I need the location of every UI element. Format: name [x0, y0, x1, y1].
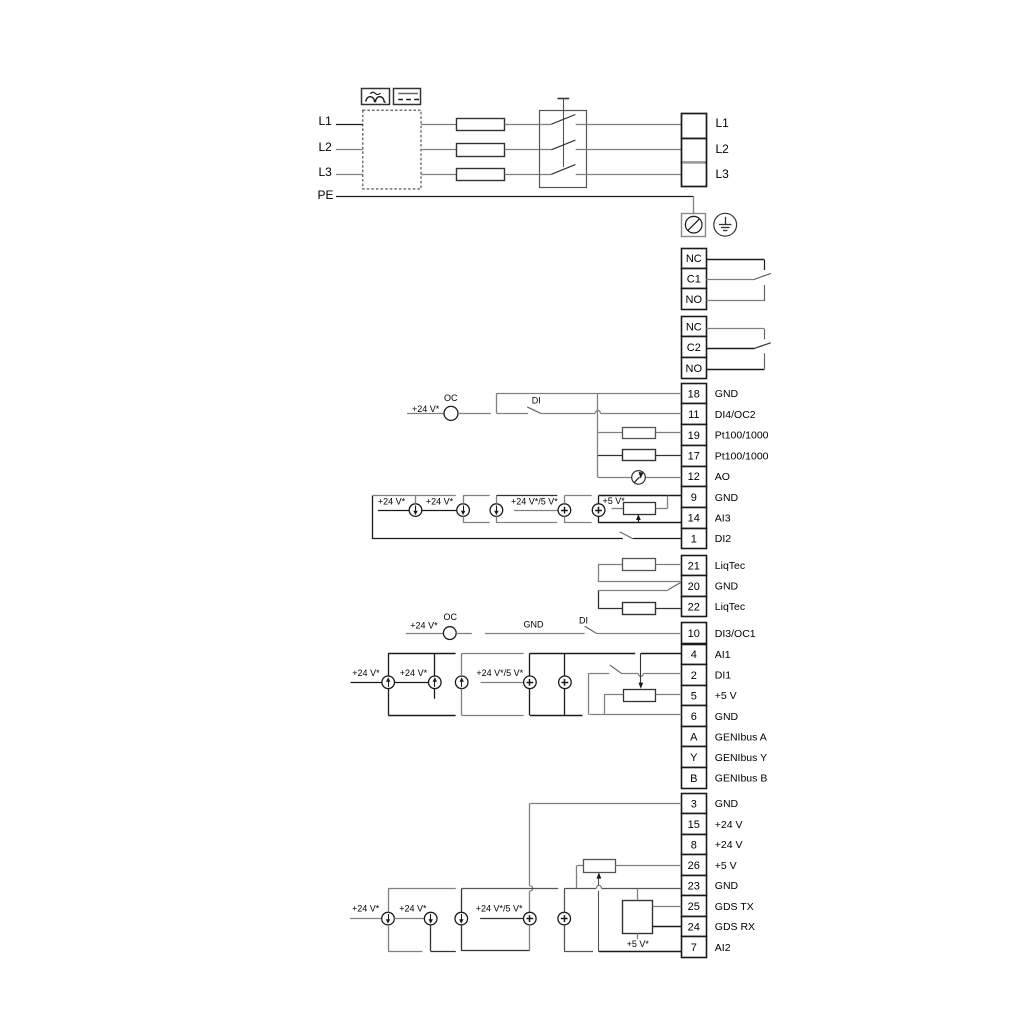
svg-text:+5 V: +5 V	[715, 860, 737, 872]
svg-text:26: 26	[688, 860, 700, 872]
svg-text:15: 15	[688, 819, 700, 831]
svg-text:AO: AO	[715, 471, 730, 483]
svg-text:L2: L2	[716, 142, 730, 156]
svg-text:L3: L3	[716, 167, 730, 181]
svg-text:L2: L2	[319, 140, 333, 154]
svg-text:GENIbus B: GENIbus B	[715, 773, 768, 785]
svg-text:6: 6	[691, 711, 697, 723]
svg-text:+5 V*: +5 V*	[603, 496, 626, 506]
svg-text:GND: GND	[715, 798, 739, 810]
svg-text:+24 V*/5 V*: +24 V*/5 V*	[511, 497, 558, 507]
svg-text:20: 20	[688, 581, 700, 593]
svg-text:L3: L3	[319, 165, 333, 179]
svg-text:DI4/OC2: DI4/OC2	[715, 409, 756, 421]
svg-text:DI: DI	[532, 395, 541, 405]
svg-text:NC: NC	[686, 253, 702, 265]
svg-text:Y: Y	[690, 752, 698, 764]
svg-text:L1: L1	[319, 114, 333, 128]
svg-text:14: 14	[688, 513, 700, 525]
svg-text:C2: C2	[687, 342, 701, 354]
svg-text:2: 2	[691, 670, 697, 682]
svg-text:GDS TX: GDS TX	[715, 901, 754, 913]
svg-text:+5 V: +5 V	[715, 690, 737, 702]
svg-text:+24 V*: +24 V*	[352, 668, 380, 678]
svg-text:L1: L1	[716, 116, 730, 130]
svg-text:GENIbus A: GENIbus A	[715, 731, 767, 743]
svg-text:GDS RX: GDS RX	[715, 921, 755, 933]
svg-text:PE: PE	[318, 188, 334, 202]
svg-text:5: 5	[691, 690, 697, 702]
svg-text:+24 V*: +24 V*	[399, 904, 427, 914]
svg-text:1: 1	[691, 533, 697, 545]
svg-text:Pt100/1000: Pt100/1000	[715, 450, 769, 462]
svg-text:22: 22	[688, 601, 700, 613]
svg-text:NC: NC	[686, 321, 702, 333]
svg-text:LiqTec: LiqTec	[715, 560, 745, 572]
svg-text:3: 3	[691, 798, 697, 810]
svg-text:+24 V*/5 V*: +24 V*/5 V*	[476, 668, 523, 678]
svg-text:DI3/OC1: DI3/OC1	[715, 628, 756, 640]
svg-text:AI1: AI1	[715, 649, 731, 661]
svg-text:+24 V: +24 V	[715, 839, 743, 851]
svg-text:25: 25	[688, 901, 700, 913]
svg-text:NO: NO	[686, 294, 703, 306]
svg-text:17: 17	[688, 451, 700, 463]
svg-text:GND: GND	[715, 388, 739, 400]
svg-text:Pt100/1000: Pt100/1000	[715, 430, 769, 442]
svg-text:+5 V*: +5 V*	[627, 939, 650, 949]
svg-text:12: 12	[688, 471, 700, 483]
svg-text:9: 9	[691, 492, 697, 504]
svg-text:DI: DI	[579, 615, 588, 625]
svg-text:+24 V*: +24 V*	[410, 621, 438, 631]
svg-text:OC: OC	[444, 393, 458, 403]
svg-text:8: 8	[691, 839, 697, 851]
svg-text:C1: C1	[687, 274, 701, 286]
svg-text:GND: GND	[715, 581, 739, 593]
svg-text:21: 21	[688, 560, 700, 572]
svg-text:+24 V*: +24 V*	[378, 497, 406, 507]
svg-text:DI2: DI2	[715, 533, 732, 545]
svg-text:GND: GND	[715, 711, 739, 723]
svg-text:7: 7	[691, 942, 697, 954]
svg-text:24: 24	[688, 921, 700, 933]
svg-text:10: 10	[688, 628, 700, 640]
svg-text:+24 V*: +24 V*	[412, 404, 440, 414]
svg-text:AI2: AI2	[715, 942, 731, 954]
svg-text:GENIbus Y: GENIbus Y	[715, 752, 767, 764]
svg-text:GND: GND	[715, 492, 739, 504]
svg-text:18: 18	[688, 388, 700, 400]
svg-text:+24 V: +24 V	[715, 819, 743, 831]
svg-text:NO: NO	[686, 363, 703, 375]
svg-text:B: B	[690, 773, 697, 785]
svg-text:+24 V*: +24 V*	[426, 497, 454, 507]
svg-text:A: A	[690, 732, 698, 744]
svg-text:OC: OC	[444, 612, 458, 622]
svg-text:LiqTec: LiqTec	[715, 601, 745, 613]
svg-text:23: 23	[688, 880, 700, 892]
svg-text:GND: GND	[715, 880, 739, 892]
svg-text:+24 V*: +24 V*	[400, 668, 428, 678]
svg-text:+24 V*/5 V*: +24 V*/5 V*	[476, 904, 523, 914]
svg-text:11: 11	[688, 409, 699, 421]
svg-text:4: 4	[691, 649, 697, 661]
svg-text:19: 19	[688, 430, 700, 442]
svg-text:DI1: DI1	[715, 670, 732, 682]
svg-text:AI3: AI3	[715, 513, 731, 525]
svg-text:GND: GND	[524, 620, 545, 630]
svg-text:+24 V*: +24 V*	[352, 904, 380, 914]
